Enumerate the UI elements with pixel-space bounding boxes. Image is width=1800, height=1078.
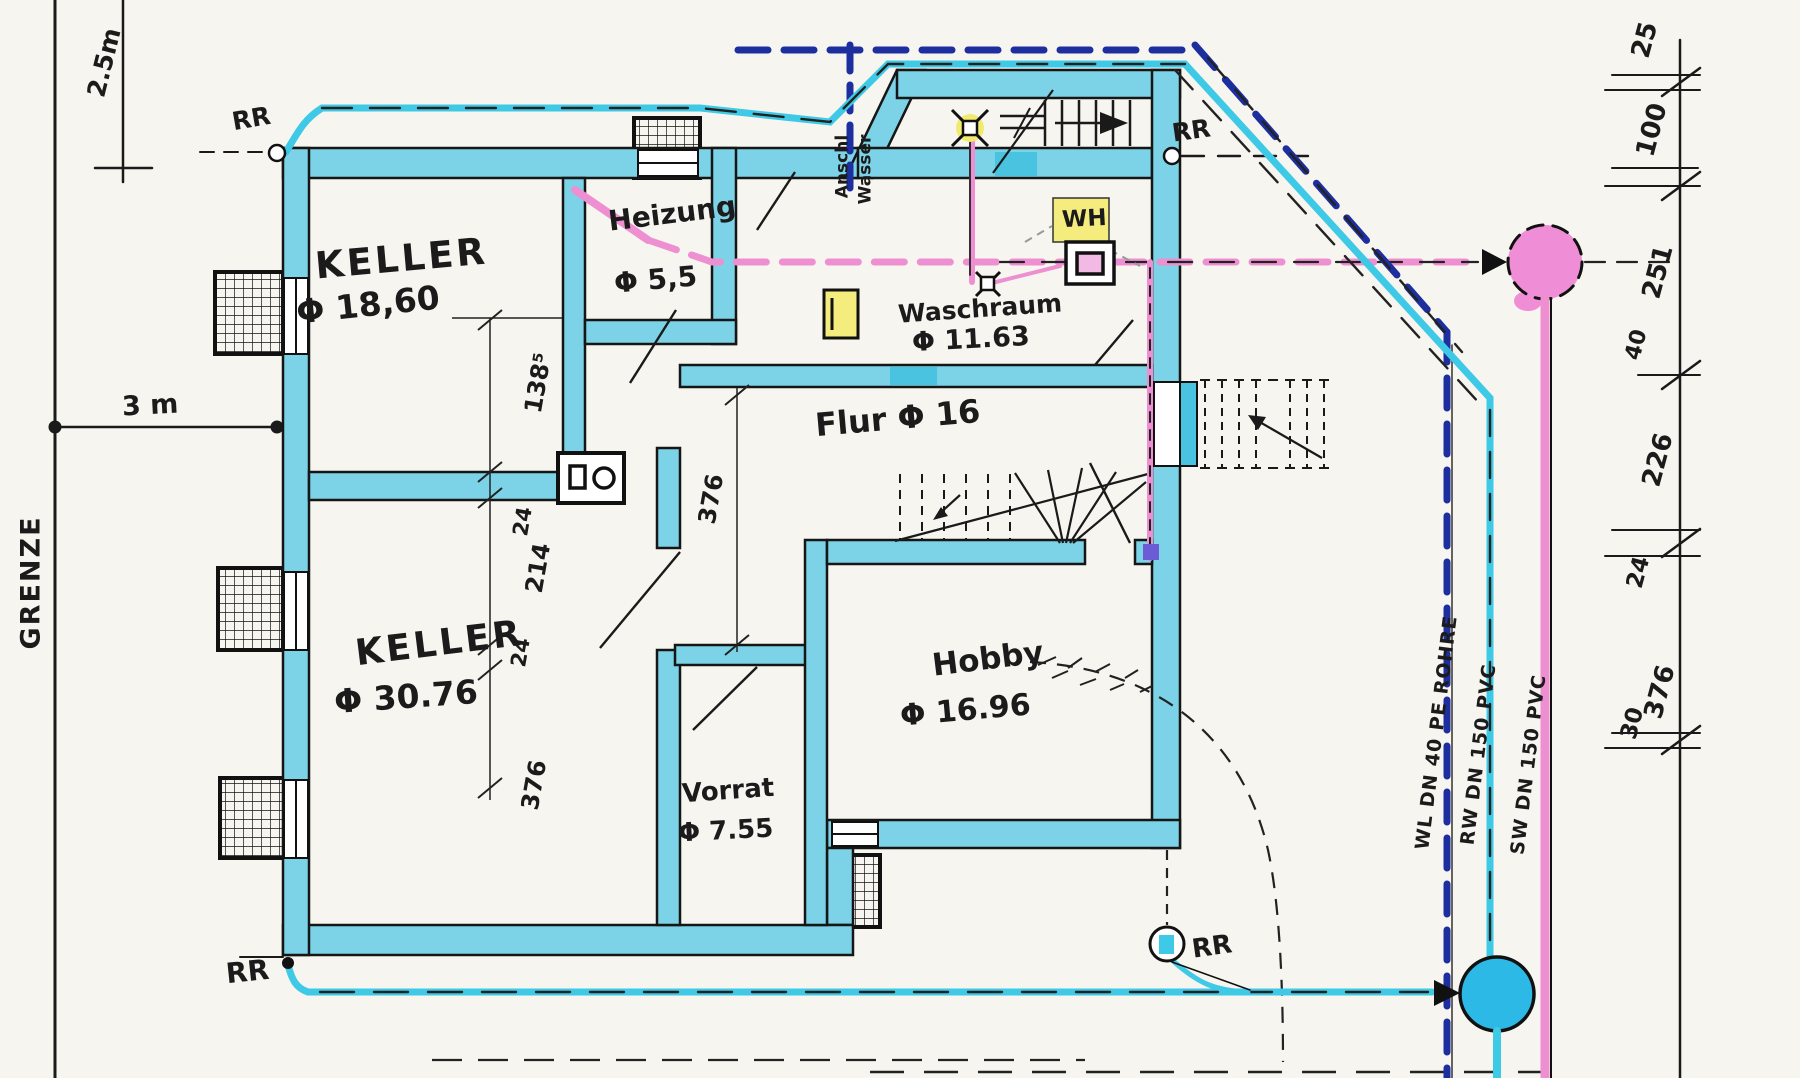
- anschluss-line2: Wasser: [858, 115, 875, 225]
- dim-3m: 3 m: [121, 391, 179, 421]
- exterior-stairs: [1200, 380, 1332, 468]
- basement-floor-plan: GRENZE 2.5m 3 m RR RR RR RR KELLER Φ 18,…: [0, 0, 1800, 1078]
- rr-bottom-left: RR: [225, 956, 271, 988]
- floor-plan-drawing: [0, 0, 1800, 1078]
- room-vorrat-area: Φ 7.55: [677, 816, 774, 847]
- chimney: [558, 453, 624, 503]
- rr-top-left: RR: [230, 103, 272, 134]
- room-keller2-area: Φ 30.76: [333, 675, 479, 718]
- room-waschraum-area: Φ 11.63: [911, 323, 1030, 356]
- rr-bottom-right: RR: [1190, 931, 1233, 962]
- light-wells: [215, 118, 880, 927]
- room-heizung-area: Φ 5,5: [613, 262, 698, 297]
- room-vorrat-name: Vorrat: [681, 775, 775, 807]
- rr-top-right: RR: [1170, 115, 1212, 145]
- anschluss-line1: Anschl: [835, 112, 852, 222]
- wh-label: WH: [1061, 207, 1107, 232]
- boundary-label: GRENZE: [18, 530, 45, 650]
- yellow-door: [824, 290, 858, 338]
